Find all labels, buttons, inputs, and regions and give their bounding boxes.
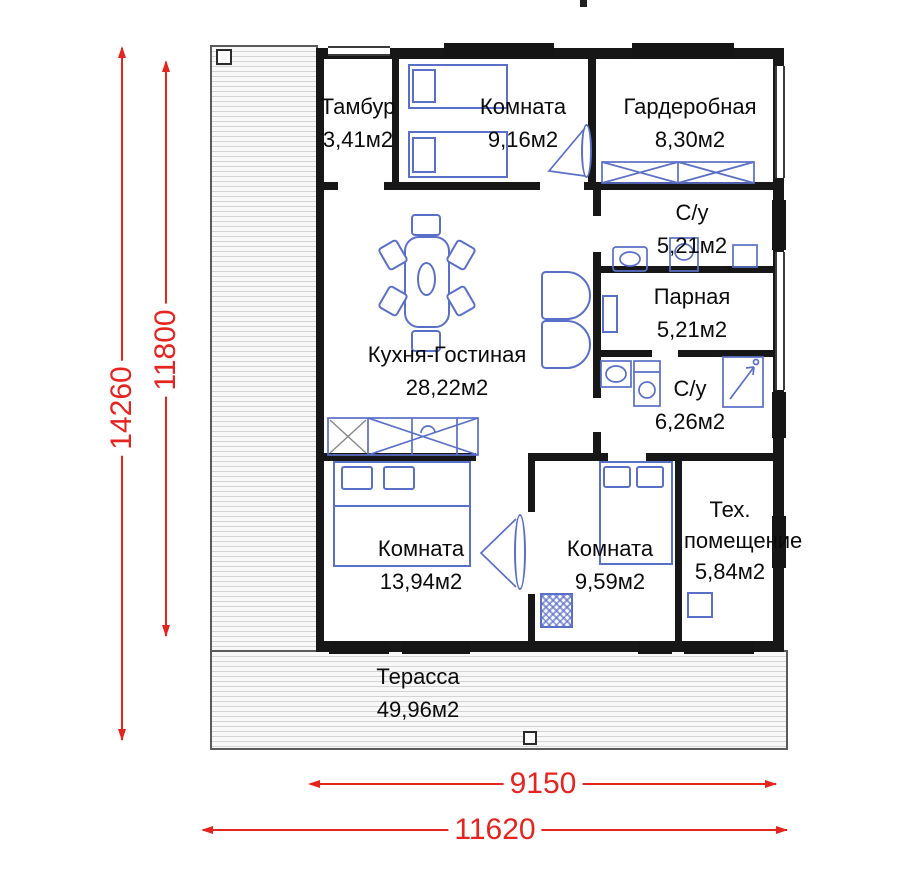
room-label-wardrobe: Гардеробная 8,30м2 — [623, 90, 756, 156]
window-icon — [328, 46, 390, 56]
pillow-icon — [412, 69, 436, 103]
room-label-bedroom-mid: Комната 9,59м2 — [567, 532, 653, 598]
door-leaf-icon — [514, 514, 526, 590]
window-icon — [638, 642, 672, 654]
dimension-value-total-height: 14260 — [105, 360, 139, 455]
room-name: С/у — [655, 372, 725, 405]
pillow-icon — [383, 466, 415, 490]
window-icon — [775, 252, 785, 390]
deck-post — [216, 49, 232, 65]
wall-interior — [601, 350, 773, 357]
dimension-arrow — [308, 780, 320, 788]
chair-icon — [411, 214, 441, 236]
room-name: Тех. помещение — [684, 494, 776, 556]
room-label-bathroom-bottom: С/у 6,26м2 — [655, 372, 725, 438]
room-area: 3,41м2 — [321, 123, 396, 156]
terrace-deck-left — [210, 45, 318, 652]
room-label-tech: Тех. помещение 5,84м2 — [684, 494, 776, 587]
dimension-value-house-width: 9150 — [504, 767, 583, 801]
room-label-bedroom-top: Комната 9,16м2 — [480, 90, 566, 156]
pillow-icon — [412, 137, 436, 173]
door-opening — [338, 182, 384, 190]
room-area: 13,94м2 — [378, 565, 464, 598]
room-label-terrace: Терасса 49,96м2 — [376, 660, 459, 726]
door-opening — [652, 350, 678, 357]
window-icon — [775, 66, 785, 178]
room-area: 6,26м2 — [655, 405, 725, 438]
room-area: 5,21м2 — [654, 313, 731, 346]
room-label-tambur: Тамбур 3,41м2 — [321, 90, 396, 156]
window-icon — [402, 642, 470, 654]
room-area: 28,22м2 — [368, 371, 527, 404]
door-opening — [608, 453, 646, 461]
wall-interior — [601, 266, 773, 273]
door-opening — [593, 216, 601, 252]
room-name: Терасса — [376, 660, 459, 693]
sofa-icon — [541, 271, 591, 320]
table-center-icon — [417, 262, 436, 296]
dimension-value-house-height: 11800 — [149, 303, 183, 396]
stove-icon — [540, 593, 573, 628]
dimension-arrow — [765, 780, 777, 788]
deck-post — [523, 731, 537, 745]
room-name: Гардеробная — [623, 90, 756, 123]
room-area: 5,21м2 — [657, 229, 727, 262]
door-opening — [476, 453, 528, 461]
door-opening — [528, 512, 535, 594]
room-area: 5,84м2 — [684, 556, 776, 587]
room-name: Комната — [378, 532, 464, 565]
sauna-bench-icon — [602, 295, 618, 333]
room-label-sauna: Парная 5,21м2 — [654, 280, 731, 346]
room-label-kitchen: Кухня-Гостиная 28,22м2 — [368, 338, 527, 404]
sofa-icon — [541, 320, 591, 369]
wall-interior — [324, 453, 773, 461]
dimension-arrow — [118, 729, 126, 741]
room-label-bathroom-top: С/у 5,21м2 — [657, 196, 727, 262]
room-label-bedroom-left: Комната 13,94м2 — [378, 532, 464, 598]
room-name: Кухня-Гостиная — [368, 338, 527, 371]
wall-interior — [675, 461, 682, 641]
room-area: 8,30м2 — [623, 123, 756, 156]
pillow-icon — [636, 466, 664, 488]
room-name: Парная — [654, 280, 731, 313]
dimension-arrow — [201, 826, 213, 834]
dimension-arrow — [162, 625, 170, 637]
equipment-icon — [687, 592, 713, 618]
dimension-arrow — [162, 60, 170, 72]
top-tick — [580, 0, 587, 7]
room-area: 9,59м2 — [567, 565, 653, 598]
window-icon — [444, 43, 554, 57]
window-icon — [329, 642, 389, 654]
door-leaf-icon — [581, 124, 592, 178]
floor-plan-canvas: Тамбур 3,41м2 Комната 9,16м2 Гардеробная… — [0, 0, 900, 882]
blanket-line — [335, 505, 469, 507]
door-opening — [540, 182, 584, 190]
dimension-arrow — [776, 826, 788, 834]
window-icon — [632, 43, 734, 57]
door-opening — [593, 398, 601, 432]
room-area: 49,96м2 — [376, 693, 459, 726]
window-icon — [772, 392, 786, 438]
window-icon — [772, 200, 786, 250]
window-icon — [684, 642, 754, 654]
pillow-icon — [603, 466, 631, 488]
room-name: С/у — [657, 196, 727, 229]
room-name: Тамбур — [321, 90, 396, 123]
dimension-arrow — [118, 46, 126, 58]
pillow-icon — [341, 466, 373, 490]
room-name: Комната — [567, 532, 653, 565]
terrace-deck-bottom — [210, 650, 788, 750]
room-name: Комната — [480, 90, 566, 123]
dimension-value-total-width: 11620 — [448, 813, 541, 847]
room-area: 9,16м2 — [480, 123, 566, 156]
